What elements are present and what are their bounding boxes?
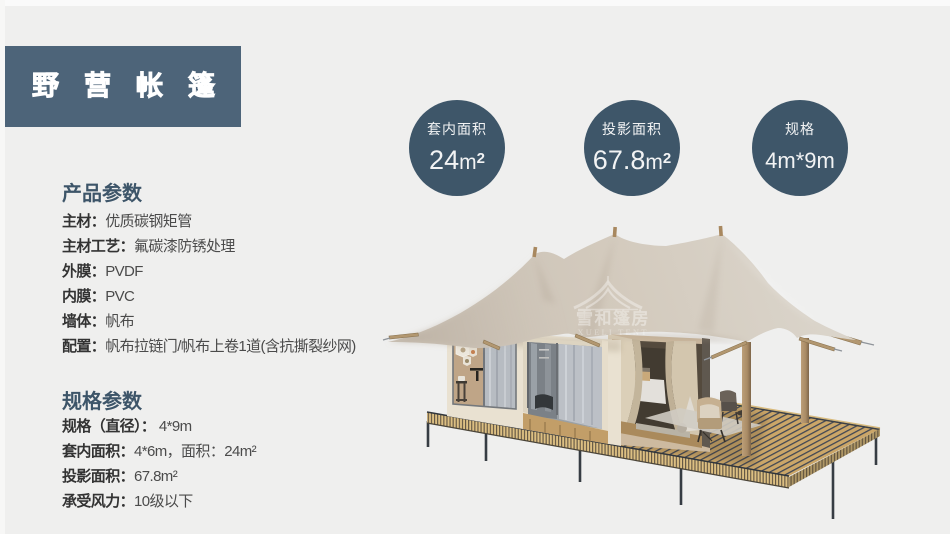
svg-text:雪和篷房: 雪和篷房	[576, 308, 650, 328]
svg-text:XUELI TENT: XUELI TENT	[577, 327, 648, 337]
